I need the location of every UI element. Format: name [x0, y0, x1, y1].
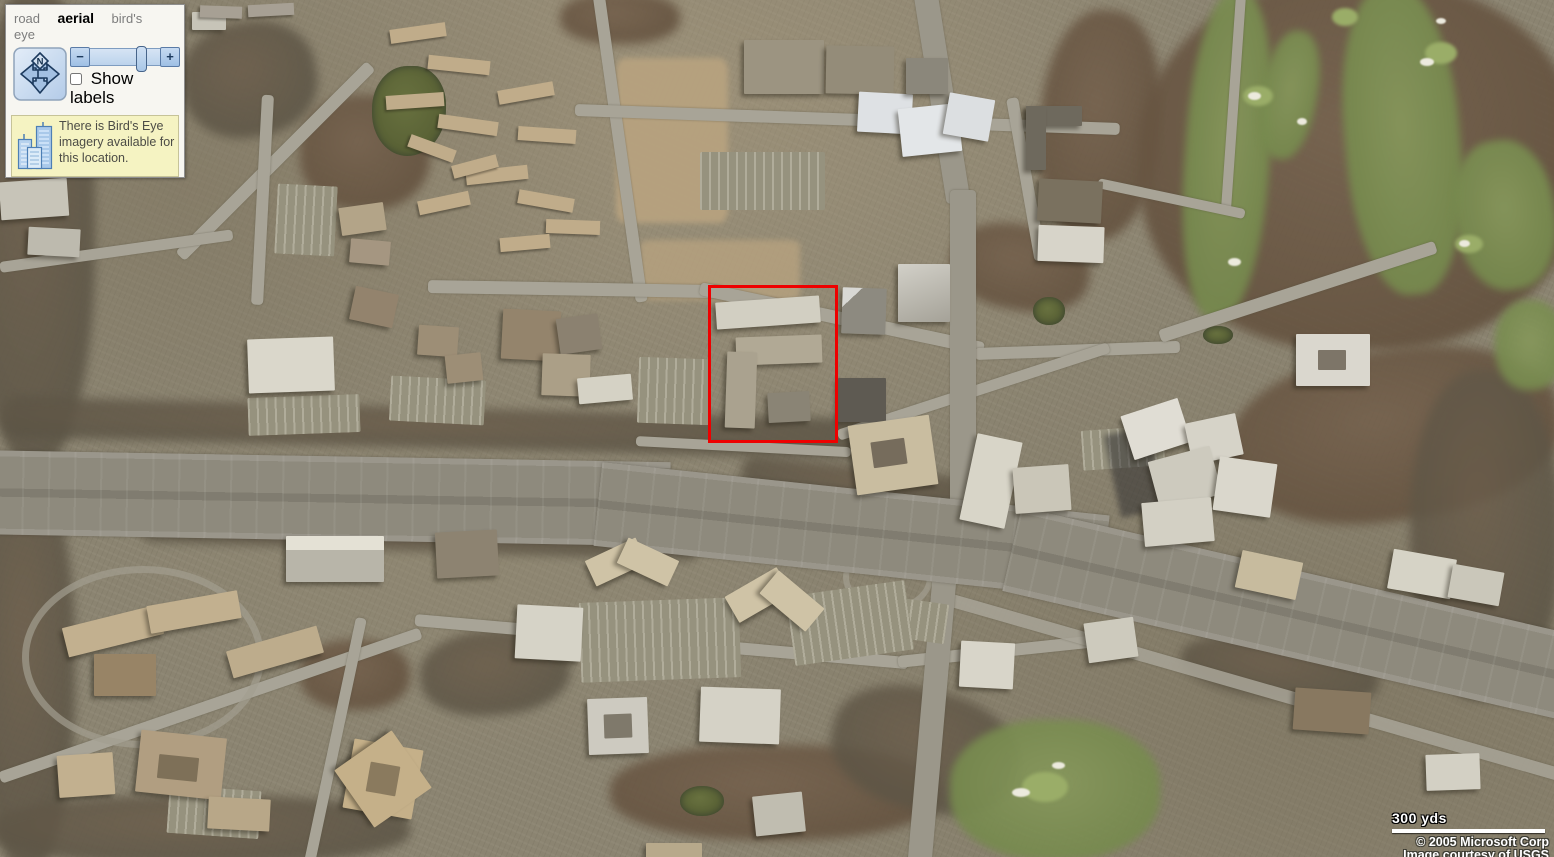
terrain-feature	[1318, 350, 1346, 370]
terrain-feature	[1037, 225, 1104, 263]
zoom-slider: − +	[70, 47, 180, 67]
terrain-feature	[1012, 788, 1030, 797]
scale-distance-label: 300 yds	[1392, 810, 1545, 826]
terrain-feature	[838, 378, 886, 422]
terrain-feature	[1037, 178, 1103, 223]
terrain-feature	[445, 352, 484, 384]
terrain-feature	[27, 227, 80, 258]
terrain-feature	[959, 641, 1015, 690]
terrain-feature	[1213, 456, 1278, 518]
terrain-feature	[870, 438, 907, 468]
terrain-feature	[680, 786, 724, 816]
terrain-feature	[349, 238, 391, 265]
terrain-feature	[518, 126, 577, 144]
zoom-in-button[interactable]: +	[160, 47, 180, 67]
terrain-feature	[57, 752, 116, 798]
terrain-feature	[427, 55, 490, 75]
terrain-feature	[826, 45, 895, 94]
birdseye-buildings-icon	[12, 116, 59, 176]
terrain-feature	[546, 219, 600, 235]
scale-bar-line	[1392, 829, 1545, 833]
view-mode-tabs: road aerial bird's eye	[14, 10, 166, 43]
terrain-feature	[248, 3, 295, 17]
scale-bar: 300 yds	[1392, 810, 1545, 833]
tab-aerial[interactable]: aerial	[57, 10, 94, 26]
terrain-feature	[389, 22, 446, 44]
terrain-feature	[906, 58, 948, 94]
terrain-feature	[274, 183, 338, 256]
terrain-feature	[1293, 687, 1372, 734]
terrain-feature	[1141, 497, 1215, 547]
terrain-feature	[1495, 300, 1554, 390]
terrain-feature	[286, 536, 384, 582]
terrain-feature	[744, 40, 824, 94]
terrain-feature	[1228, 258, 1241, 266]
zoom-out-button[interactable]: −	[70, 47, 90, 67]
terrain-feature	[200, 5, 242, 18]
terrain-feature	[1033, 297, 1065, 325]
birdseye-notice-text: There is Bird's Eye imagery available fo…	[59, 116, 178, 176]
show-labels-control[interactable]: Show labels	[70, 69, 174, 107]
attribution-line-2: Image courtesy of USGS	[1403, 849, 1549, 857]
terrain-feature	[1248, 92, 1261, 100]
terrain-feature	[1297, 118, 1307, 125]
terrain-feature	[499, 234, 550, 252]
terrain-feature	[389, 376, 486, 426]
terrain-feature	[338, 202, 386, 236]
terrain-feature	[349, 286, 399, 328]
terrain-feature	[1026, 106, 1046, 170]
terrain-feature	[157, 754, 199, 782]
terrain-feature	[556, 313, 603, 354]
compass-north-label: N	[37, 57, 44, 68]
terrain-feature	[247, 394, 360, 436]
birdseye-notice: There is Bird's Eye imagery available fo…	[11, 115, 179, 177]
terrain-feature	[604, 714, 633, 739]
zoom-slider-track[interactable]	[90, 48, 160, 66]
terrain-feature	[517, 189, 575, 213]
terrain-feature	[1022, 772, 1068, 802]
terrain-feature	[898, 264, 950, 322]
terrain-feature	[943, 92, 996, 141]
terrain-feature	[841, 287, 887, 335]
tab-road[interactable]: road	[14, 11, 40, 26]
terrain-feature	[94, 654, 156, 696]
terrain-feature	[437, 114, 498, 136]
terrain-feature	[0, 450, 671, 546]
terrain-feature	[435, 529, 499, 578]
terrain-feature	[0, 178, 69, 221]
terrain-feature	[207, 796, 271, 831]
terrain-feature	[1436, 18, 1446, 24]
terrain-feature	[417, 325, 459, 358]
terrain-feature	[637, 357, 711, 425]
terrain-feature	[1052, 762, 1065, 769]
terrain-feature	[579, 597, 742, 683]
terrain-feature	[1083, 617, 1138, 664]
aerial-map-canvas[interactable]: 300 yds © 2005 Microsoft Corp Image cour…	[0, 0, 1554, 857]
terrain-feature	[699, 687, 781, 745]
terrain-feature	[700, 152, 825, 210]
map-control-panel: road aerial bird's eye N −	[5, 4, 185, 178]
terrain-feature	[1332, 8, 1358, 26]
terrain-feature	[417, 191, 471, 216]
show-labels-checkbox[interactable]	[70, 73, 82, 85]
terrain-feature	[1459, 240, 1470, 247]
terrain-feature	[366, 762, 401, 797]
terrain-feature	[1425, 753, 1480, 791]
terrain-feature	[560, 0, 680, 44]
terrain-feature	[247, 337, 335, 394]
virtual-earth-window: 300 yds © 2005 Microsoft Corp Image cour…	[0, 0, 1554, 857]
highlight-box	[708, 285, 838, 443]
terrain-feature	[1012, 464, 1071, 514]
terrain-feature	[515, 604, 584, 661]
terrain-feature	[646, 843, 702, 857]
pan-compass-control[interactable]: N	[13, 47, 67, 101]
map-attribution: © 2005 Microsoft Corp Image courtesy of …	[1403, 836, 1549, 857]
terrain-feature	[1203, 326, 1233, 344]
terrain-feature	[497, 81, 555, 105]
terrain-feature	[1420, 58, 1434, 66]
terrain-feature	[1120, 398, 1191, 460]
terrain-feature	[752, 791, 806, 836]
terrain-feature	[577, 374, 633, 405]
